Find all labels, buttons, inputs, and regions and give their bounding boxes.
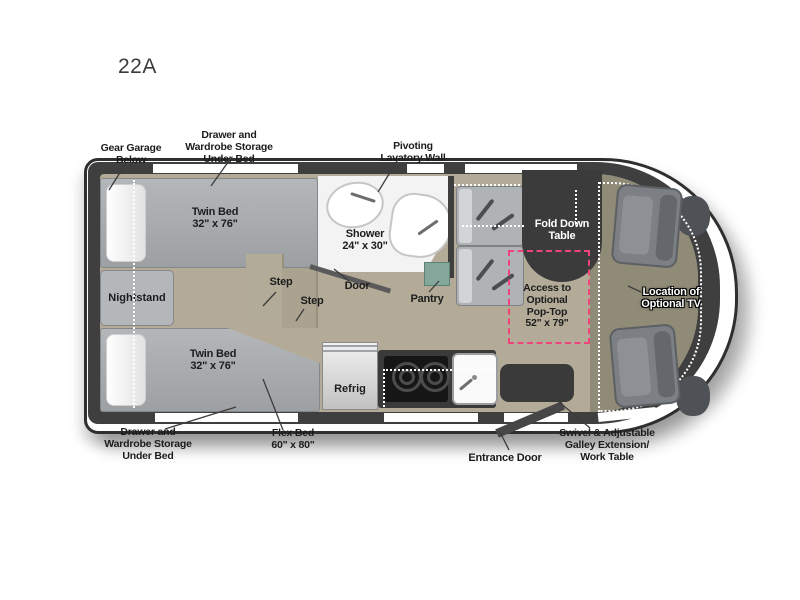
window-strip [155,413,298,422]
chair-cushion [617,337,652,397]
dotted-outline [575,190,577,224]
captain-chair-driver [611,183,684,268]
chair-back [655,194,678,261]
shower-label: Shower 24" x 30" [325,228,405,253]
nightstand: Nightstand [100,270,174,326]
seat-backrest [459,249,472,303]
dinette-seat [456,186,524,246]
seat-backrest [459,189,472,243]
tv-location-label: Location of Optional TV [628,286,714,311]
drawer-storage-top-label: Drawer and Wardrobe Storage Under Bed [185,130,273,165]
pop-top-label: Access to Optional Pop-Top 52" x 79" [506,283,588,330]
pantry-cabinet [424,262,450,286]
wheel-well [676,376,710,416]
pillow [106,184,146,262]
twin-bed-bottom-label: Twin Bed 32" x 76" [168,348,258,373]
counter-dotted-line [383,369,495,407]
gear-garage-label: Gear Garage Below [95,143,167,167]
pillow [106,334,146,406]
drawer-storage-bottom-label: Drawer and Wardrobe Storage Under Bed [100,427,196,462]
window-strip [407,164,444,173]
twin-bed-top-label: Twin Bed 32" x 76" [170,206,260,231]
model-title: 22A [118,55,157,79]
pivoting-lavatory-label: Pivoting Lavatory Wall [375,141,451,165]
entrance-door-label: Entrance Door [455,452,555,464]
chair-cushion [619,195,654,255]
step-lower-label: Step [294,295,330,307]
door-label: Door [338,280,376,292]
flex-bed-dotted-line [133,180,135,408]
seat-belt [475,199,494,222]
refrigerator: Refrig [322,342,378,410]
nightstand-label: Nightstand [108,292,165,304]
refrig-label: Refrig [334,383,366,395]
galley-extension-table [500,364,574,402]
fold-down-table-label: Fold Down Table [522,218,602,243]
seat-belt [475,259,494,282]
pantry-label: Pantry [400,293,454,305]
chair-back [653,331,676,398]
fridge-vents [323,345,377,355]
floorplan-canvas: 22A Nightstand Fold Down Tabl [0,0,800,600]
flex-bed-label: Flex Bed 60" x 80" [256,428,330,452]
window-strip [384,413,478,422]
captain-chair-passenger [609,323,682,408]
step-upper [246,254,284,326]
dotted-outline [462,225,524,227]
dotted-outline [454,184,524,186]
swivel-galley-label: Swivel & Adjustable Galley Extension/ Wo… [548,428,666,463]
seat-belt [491,213,515,231]
window-strip [153,164,298,173]
step-upper-label: Step [263,276,299,288]
